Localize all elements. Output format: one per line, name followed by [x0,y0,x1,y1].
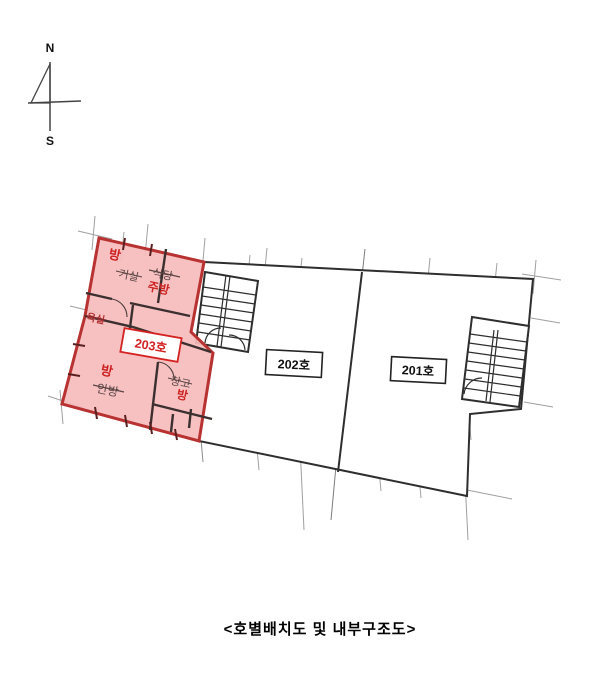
floorplan-page: 203호 202호 201호 방 거실 식당 주방 욕실 방 안방 창고 방 [0,0,601,700]
stairwell-right [462,317,529,407]
unit-202-label: 202호 [277,357,311,373]
compass-south-label: S [46,134,54,148]
compass-north-label: N [46,41,55,55]
drawing-caption: <호별배치도 및 내부구조도> [120,618,520,639]
compass-icon [28,62,81,131]
stairwell-left [196,272,258,352]
unit-201-label: 201호 [401,363,435,379]
floorplan-drawing: 203호 202호 201호 방 거실 식당 주방 욕실 방 안방 창고 방 [0,0,601,700]
unit-201-label-box: 201호 [390,357,446,384]
unit-202-label-box: 202호 [265,350,322,378]
